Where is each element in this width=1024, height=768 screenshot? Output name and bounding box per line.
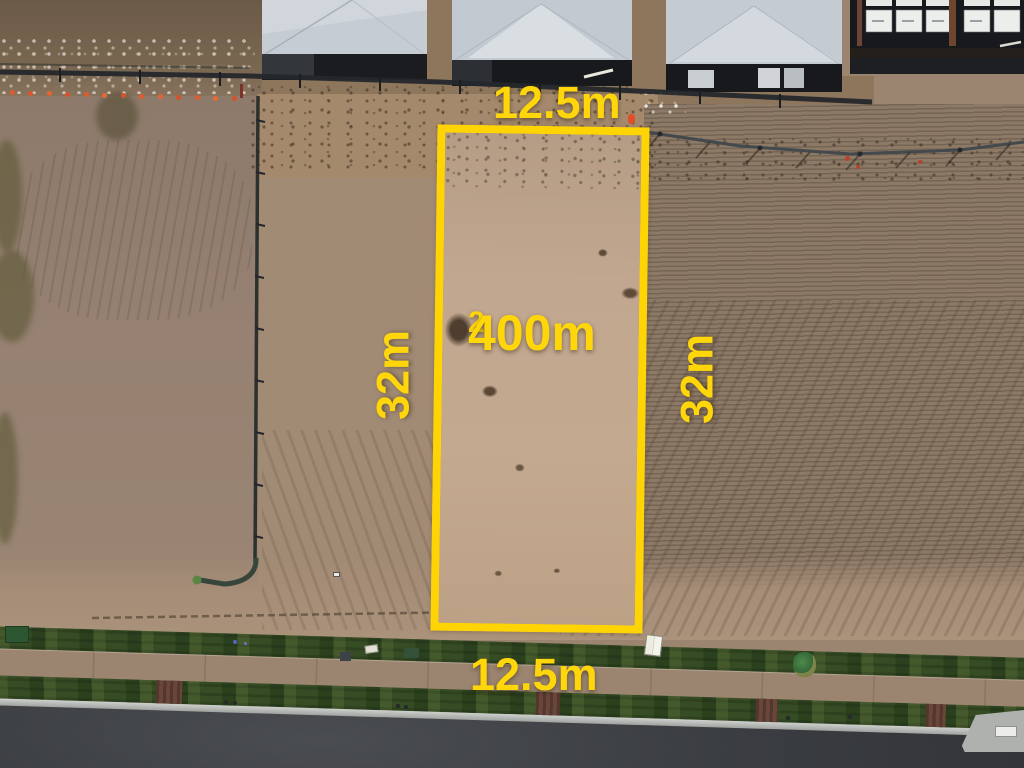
- red-debris: [856, 165, 860, 169]
- meter-box: [340, 652, 351, 661]
- curb-debris: [404, 705, 408, 709]
- dimension-label-right-depth: 32m: [675, 334, 720, 424]
- utility-box: [5, 626, 29, 643]
- white-debris-chip: [333, 572, 340, 577]
- lot-interior: [439, 133, 642, 626]
- soil-stain: [515, 464, 525, 472]
- lot-debris-band: [445, 133, 642, 191]
- area-value: 400m: [468, 308, 596, 358]
- curb-debris: [786, 716, 790, 720]
- blue-marker: [244, 642, 247, 645]
- lot-boundary-outline: [430, 125, 649, 634]
- soil-stain: [494, 570, 502, 576]
- soil-stain: [598, 249, 608, 257]
- area-label: 400m2: [468, 308, 485, 362]
- utility-pit-lid: [404, 648, 419, 658]
- shrub: [793, 652, 816, 677]
- soil-stain: [482, 385, 498, 397]
- ac-unit: [784, 68, 804, 88]
- lot-sign-board: [644, 634, 663, 657]
- house-1: [262, 0, 427, 80]
- silt-fence: [254, 96, 265, 562]
- kerb-ramp-plate: [995, 726, 1017, 737]
- dimension-label-top-width: 12.5m: [493, 80, 621, 125]
- ac-unit: [758, 68, 780, 88]
- material-stack: [850, 0, 1024, 74]
- curb-debris: [224, 700, 228, 704]
- temporary-fence: [646, 132, 1024, 171]
- soil-stain: [621, 287, 639, 299]
- red-debris: [845, 156, 850, 161]
- survey-flag-row: [10, 90, 15, 95]
- drainage-pipe: [193, 558, 257, 585]
- curb-debris: [233, 701, 237, 705]
- ac-unit: [688, 70, 714, 88]
- gap-dirt: [427, 0, 455, 86]
- house-3: [666, 0, 842, 92]
- survey-stake: [240, 84, 243, 98]
- red-debris: [918, 160, 922, 164]
- soil-stain: [553, 568, 560, 573]
- gap-dirt: [632, 0, 666, 92]
- dimension-label-bottom-width: 12.5m: [470, 652, 598, 697]
- aerial-photo-vacant-lot: 12.5m 12.5m 32m 32m 400m2: [0, 0, 1024, 768]
- blue-marker: [233, 640, 237, 644]
- orange-peg: [628, 114, 635, 124]
- curb-debris: [396, 704, 400, 708]
- curb-debris: [848, 715, 852, 719]
- dimension-label-left-depth: 32m: [371, 330, 416, 420]
